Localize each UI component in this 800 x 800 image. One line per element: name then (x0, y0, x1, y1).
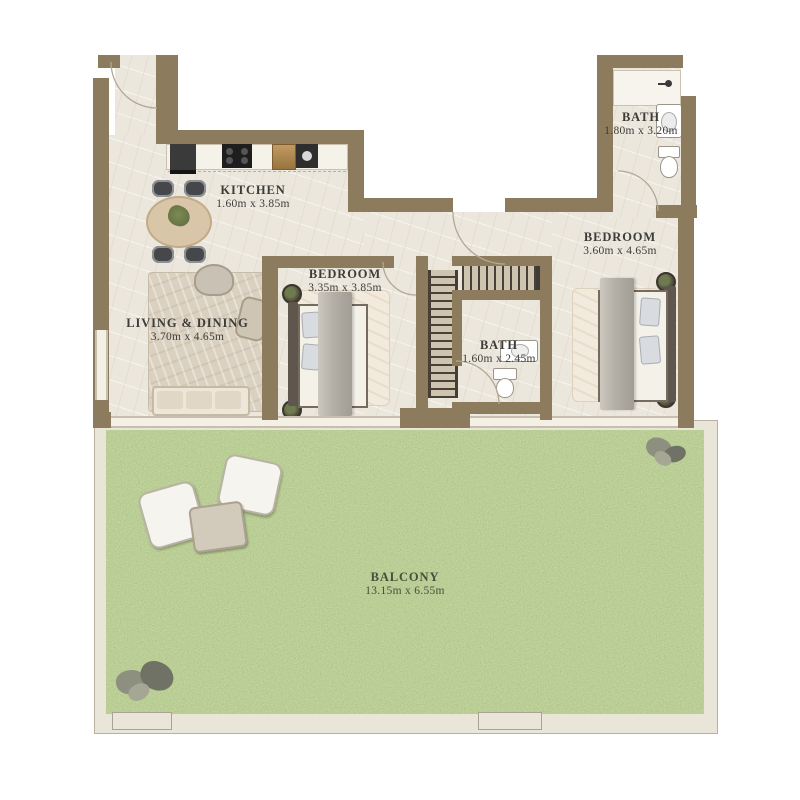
left-wall-window (95, 330, 108, 400)
dining-chair (152, 180, 174, 197)
bedroom2-dims: 3.60m x 4.65m (560, 245, 680, 259)
wall-bedroom1-right (416, 256, 428, 420)
stove (222, 144, 252, 168)
dining-chair (152, 246, 174, 263)
wall-right-of-entry (156, 55, 178, 137)
wall-bath1-top (605, 55, 683, 68)
bedroom1-blanket (318, 292, 352, 416)
living-label: LIVING & DINING 3.70m x 4.65m (110, 316, 265, 344)
balcony-table (188, 500, 248, 553)
bedroom1-label: BEDROOM 3.35m x 3.85m (288, 267, 402, 295)
kitchen-dims: 1.60m x 3.85m (196, 198, 310, 212)
wall-corner-bottom-left (93, 412, 111, 428)
balcony-label: BALCONY 13.15m x 6.55m (338, 570, 472, 598)
bath1-name: BATH (592, 110, 690, 125)
bedroom1-dims: 3.35m x 3.85m (288, 282, 402, 296)
bath1-label: BATH 1.80m x 3.20m (592, 110, 690, 138)
living-name: LIVING & DINING (110, 316, 265, 331)
wall-kitchen-top (156, 130, 364, 144)
dining-chair (184, 246, 206, 263)
sink-bowl (302, 151, 312, 161)
toilet-bowl (660, 156, 678, 178)
bath1-dims: 1.80m x 3.20m (592, 125, 690, 139)
shower-head-icon (658, 80, 672, 88)
bedroom2-label: BEDROOM 3.60m x 4.65m (560, 230, 680, 258)
bath1-toilet (658, 146, 680, 178)
wall-void-bottom-left (348, 198, 453, 212)
floor-plan: KITCHEN 1.60m x 3.85m LIVING & DINING 3.… (0, 0, 800, 800)
bedroom2-pillow (639, 335, 661, 365)
burner (226, 148, 233, 155)
sofa-cushion (186, 391, 212, 409)
bedroom2-pillow (639, 297, 661, 326)
bath2-label: BATH 1.60m x 2.45m (452, 338, 546, 366)
wall-bath1-bottom (656, 205, 697, 218)
entry-hall-floor (115, 55, 156, 137)
shower-rose (665, 80, 672, 87)
burner (241, 148, 248, 155)
kitchen-name: KITCHEN (196, 183, 310, 198)
wall-right-outer (678, 218, 694, 428)
sofa-cushion (157, 391, 183, 409)
bath2-name: BATH (452, 338, 546, 353)
sofa (152, 386, 250, 416)
burner (241, 157, 248, 164)
bedroom2-name: BEDROOM (560, 230, 680, 245)
armchair (194, 264, 234, 296)
kitchen-label: KITCHEN 1.60m x 3.85m (196, 183, 310, 211)
kitchen-sink (296, 144, 318, 168)
wall-corner-bottom-right (678, 412, 694, 428)
bath2-toilet (492, 368, 516, 398)
balcony-name: BALCONY (338, 570, 472, 585)
balcony-step-left (112, 712, 172, 730)
shower-tray (613, 70, 681, 106)
sofa-cushion (215, 391, 241, 409)
bedroom1-headboard (288, 302, 298, 406)
balcony-step-mid (478, 712, 542, 730)
wall-entry-top-stub (98, 55, 120, 68)
living-dims: 3.70m x 4.65m (110, 331, 265, 345)
burner (226, 157, 233, 164)
bath2-dims: 1.60m x 2.45m (452, 353, 546, 367)
bedroom2-blanket (600, 278, 634, 410)
wall-closet-top (452, 256, 552, 266)
balcony-dims: 13.15m x 6.55m (338, 585, 472, 599)
cutting-board (272, 144, 296, 170)
balcony-glazing (108, 416, 678, 428)
wall-bottom-mid-chunk (400, 408, 470, 428)
bedroom1-name: BEDROOM (288, 267, 402, 282)
wall-bath2-top (452, 290, 550, 300)
kitchen-cabinet (170, 144, 196, 174)
toilet-bowl (496, 378, 514, 398)
